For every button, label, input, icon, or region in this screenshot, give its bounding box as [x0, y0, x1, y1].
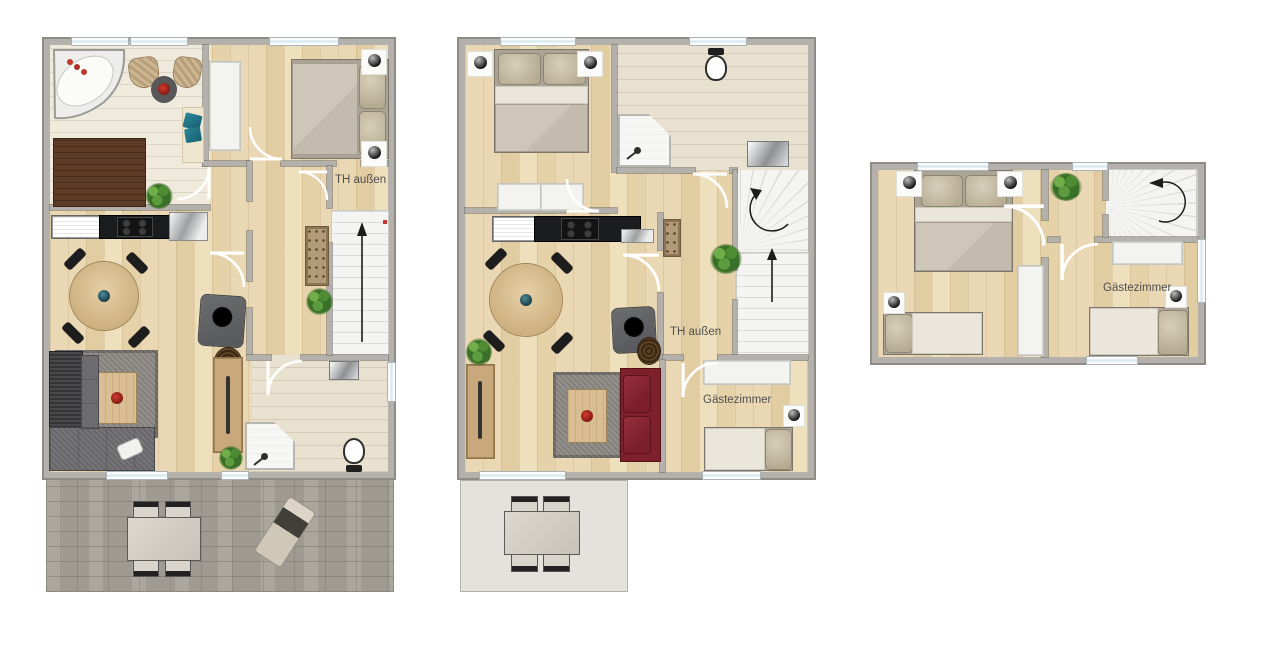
window: [72, 38, 128, 45]
outdoor-table-icon: [128, 518, 200, 560]
stove-top-icon: [118, 218, 152, 236]
nightstand: [362, 142, 386, 166]
interior-wall: [1103, 170, 1108, 200]
kitchen-steel-counter: [170, 213, 207, 240]
kitchen-sink-icon: [52, 216, 100, 238]
terrace-plain: [460, 480, 628, 592]
duvet: [495, 104, 588, 152]
hall-bench-icon: [306, 227, 328, 285]
toilet-icon: [705, 47, 727, 81]
window: [1073, 163, 1107, 170]
sofa-cushion: [623, 375, 651, 413]
stairwell-label: TH außen: [335, 174, 386, 186]
bed-sheet: [912, 313, 982, 354]
nightstand: [468, 52, 492, 76]
dresser-icon: [498, 184, 541, 210]
flower-decor-icon: [581, 410, 593, 422]
floorplan-canvas: TH außen: [0, 0, 1263, 647]
window: [690, 38, 746, 45]
interior-wall: [1048, 237, 1060, 242]
outdoor-table-icon: [505, 512, 579, 554]
firewood-basket-icon: [638, 338, 660, 364]
bed-sheet: [495, 86, 588, 104]
door-arc: [176, 166, 210, 200]
duvet: [915, 222, 1012, 271]
bed-sheet: [915, 207, 1012, 222]
pillow: [498, 53, 541, 85]
nightstand: [784, 406, 804, 426]
single-bed-icon: [884, 313, 982, 354]
sauna-deck-icon: [53, 138, 146, 207]
outdoor-chair-icon: [512, 554, 537, 571]
stair-direction-arrow: [354, 220, 370, 348]
outdoor-chair-icon: [134, 558, 158, 576]
toilet-icon: [343, 438, 365, 472]
nightstand: [897, 172, 921, 196]
sofa-cushion: [623, 416, 651, 454]
terrace-paved: [46, 479, 394, 592]
door-arc: [622, 254, 660, 292]
door-arc: [682, 362, 718, 398]
red-sofa-icon: [620, 368, 661, 462]
sideboard-icon: [467, 365, 494, 458]
sofa-cushion: [82, 356, 98, 428]
door-arc: [249, 126, 283, 160]
door-arc: [1061, 243, 1099, 281]
window: [388, 363, 395, 401]
corner-bathtub-icon: [52, 48, 128, 121]
plant-icon: [1050, 173, 1082, 201]
winder-arrow: [1113, 175, 1191, 227]
winder-arrow: [742, 178, 796, 234]
lamp-icon: [903, 176, 916, 189]
interior-wall: [733, 300, 737, 360]
guest-room-label: Gästezimmer: [1103, 282, 1171, 294]
interior-wall: [658, 213, 663, 250]
wardrobe-icon: [1018, 266, 1043, 355]
interior-wall: [247, 308, 252, 355]
shower-head-icon: [251, 452, 269, 468]
hall-bench-icon: [664, 220, 680, 256]
lamp-icon: [1004, 176, 1017, 189]
sun-lounger-icon: [255, 497, 315, 567]
wardrobe-icon: [210, 62, 240, 150]
plant-icon: [306, 288, 333, 315]
nightstand: [998, 172, 1022, 196]
window: [1198, 240, 1205, 302]
flower-decor-icon: [158, 83, 170, 95]
lamp-icon: [584, 56, 597, 69]
plant-icon: [145, 183, 173, 209]
bed-sheet: [1090, 308, 1158, 355]
window: [480, 472, 565, 479]
window: [270, 38, 338, 45]
kitchen-sink-icon: [493, 217, 535, 241]
floorplan-left: TH außen: [43, 38, 395, 479]
interior-wall: [301, 355, 388, 360]
window: [222, 472, 248, 479]
floorplan-right: Gästezimmer: [871, 163, 1205, 364]
bathroom-sink-icon: [330, 362, 358, 379]
door-arc: [209, 252, 245, 288]
interior-wall: [612, 45, 617, 172]
floorplan-middle: TH außen Gästezimmer: [458, 38, 815, 479]
window: [107, 472, 167, 479]
pillow: [765, 429, 792, 470]
bathroom-sink-icon: [748, 142, 788, 166]
window: [501, 38, 575, 45]
pillow: [921, 175, 963, 207]
duvet: [292, 63, 358, 155]
flower-decor-icon: [111, 392, 123, 404]
lamp-icon: [368, 54, 381, 67]
stair-direction-arrow: [764, 246, 780, 308]
stove-top-icon: [562, 219, 598, 239]
interior-wall: [663, 355, 683, 360]
door-arc: [692, 173, 728, 209]
single-bed-icon: [1090, 308, 1188, 355]
interior-wall: [247, 161, 252, 201]
interior-wall: [203, 161, 251, 166]
lamp-icon: [368, 146, 381, 159]
shower-head-icon: [624, 146, 642, 162]
interior-wall: [247, 231, 252, 281]
lamp-icon: [888, 296, 900, 308]
pillow: [885, 314, 913, 353]
pillow: [1158, 310, 1188, 355]
stairwell-label: TH außen: [670, 326, 721, 338]
window: [703, 472, 760, 479]
plant-icon: [466, 338, 492, 366]
table-decor-icon: [98, 290, 110, 302]
outdoor-chair-icon: [166, 558, 190, 576]
lamp-icon: [1170, 290, 1182, 302]
interior-wall: [1103, 215, 1108, 237]
double-bed-icon: [495, 50, 588, 152]
nightstand: [362, 50, 386, 74]
interior-wall: [203, 45, 208, 166]
nightstand: [578, 52, 602, 76]
towel-stack-icon: [184, 127, 202, 143]
wardrobe-icon: [1113, 242, 1182, 264]
window: [1087, 357, 1137, 364]
outdoor-chair-icon: [544, 554, 569, 571]
fireplace-icon: [198, 295, 245, 348]
window: [131, 38, 187, 45]
door-arc: [1003, 205, 1045, 247]
smoke-detector-icon: [383, 220, 387, 224]
door-arc: [566, 178, 600, 212]
sideboard-icon: [214, 358, 242, 452]
plant-icon: [710, 244, 742, 274]
door-arc: [298, 171, 328, 201]
lamp-icon: [788, 409, 800, 421]
single-bed-icon: [705, 428, 792, 470]
kitchen-steel-counter: [622, 230, 653, 242]
nightstand: [884, 293, 904, 313]
guest-room-label: Gästezimmer: [703, 394, 771, 406]
table-decor-icon: [520, 294, 532, 306]
lamp-icon: [474, 56, 487, 69]
door-arc: [267, 360, 303, 396]
bed-sheet: [705, 428, 765, 470]
window: [918, 163, 988, 170]
interior-wall: [718, 355, 808, 360]
plant-icon: [219, 446, 243, 470]
interior-wall: [617, 168, 695, 173]
